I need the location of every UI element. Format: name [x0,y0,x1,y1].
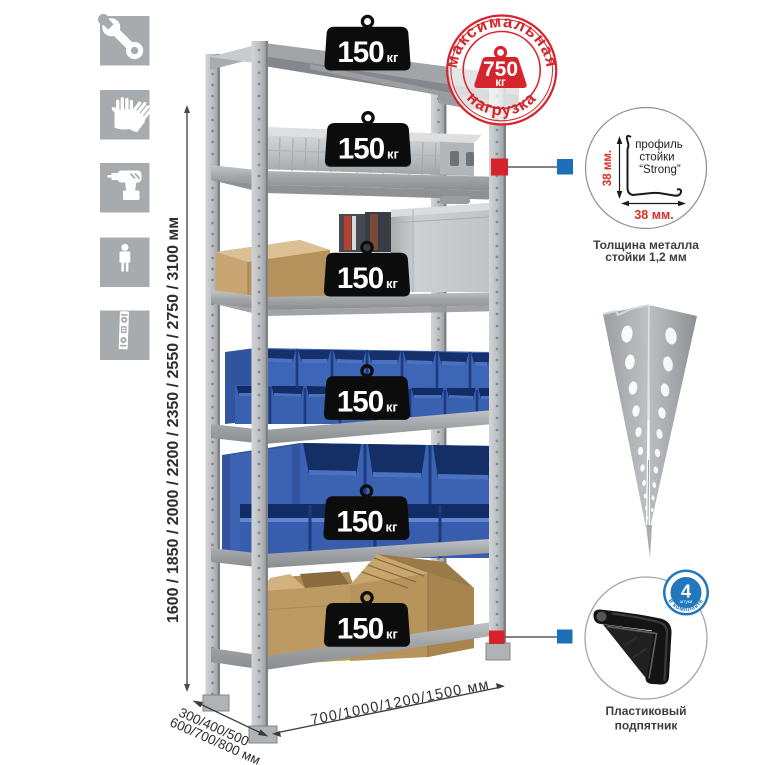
svg-text:стойки 1,2 мм: стойки 1,2 мм [605,250,687,264]
svg-text:38 мм.: 38 мм. [634,208,673,222]
svg-text:штуки: штуки [680,599,693,604]
svg-text:Пластиковый: Пластиковый [605,704,686,718]
svg-text:38 мм.: 38 мм. [602,150,614,186]
svg-text:“Strong”: “Strong” [639,164,681,176]
svg-text:1600 / 1850 / 2000 / 2200 / 23: 1600 / 1850 / 2000 / 2200 / 2350 / 2550 … [165,217,182,623]
svg-text:профиль: профиль [635,139,683,151]
svg-text:стойки: стойки [639,152,674,164]
svg-text:подпятник: подпятник [615,719,679,733]
svg-text:кг: кг [495,77,506,89]
